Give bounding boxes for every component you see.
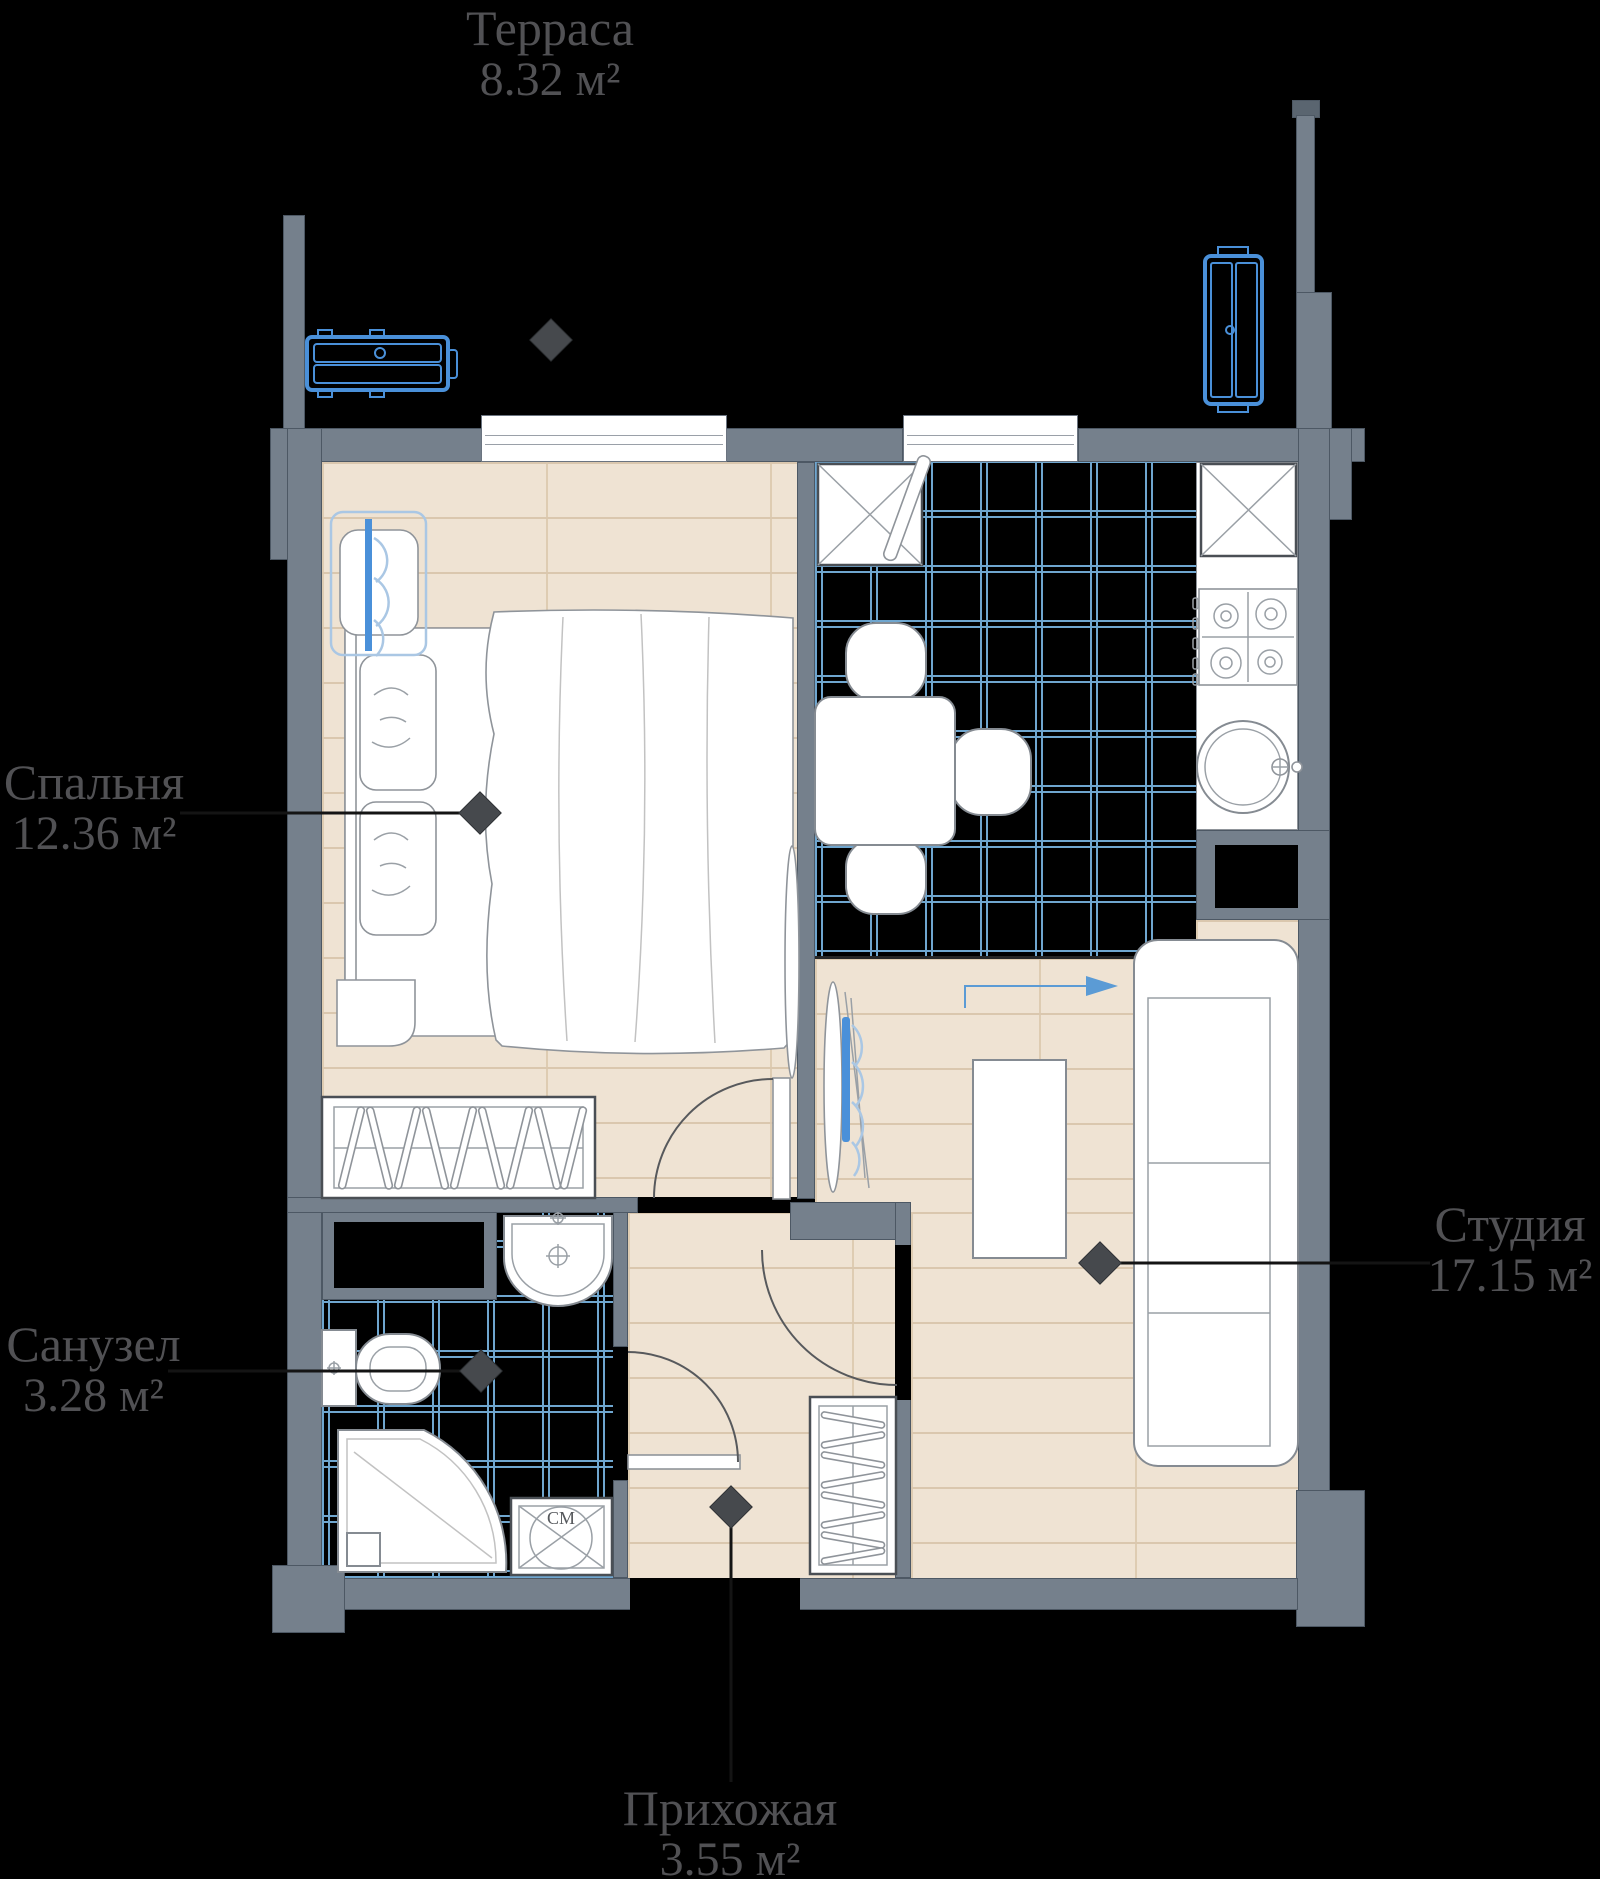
sliding-door-arrow xyxy=(965,976,1118,1008)
bathroom-name: Санузел xyxy=(0,1318,191,1371)
hallway-name: Прихожая xyxy=(540,1782,920,1835)
stove xyxy=(1193,589,1297,685)
washing-machine: СМ xyxy=(511,1498,612,1575)
toilet xyxy=(322,1330,440,1406)
studio-curtain xyxy=(824,982,869,1192)
fridge xyxy=(1201,464,1296,556)
studio-label: Студия 17.15 м² xyxy=(1415,1198,1600,1301)
bathroom-area: 3.28 м² xyxy=(0,1371,191,1421)
bedroom-door xyxy=(654,1078,790,1199)
terrace-cabinet xyxy=(1205,247,1262,412)
hallway-label: Прихожая 3.55 м² xyxy=(540,1782,920,1879)
hallway-wardrobe xyxy=(810,1397,896,1574)
bathroom-label: Санузел 3.28 м² xyxy=(0,1318,191,1421)
coffee-table xyxy=(973,1060,1066,1258)
bathroom-door xyxy=(628,1352,740,1469)
hall-studio-door xyxy=(762,1250,897,1385)
bedroom-name: Спальня xyxy=(0,756,194,809)
washer-label: СМ xyxy=(547,1508,575,1528)
terrace-area: 8.32 м² xyxy=(330,55,770,105)
studio-name: Студия xyxy=(1415,1198,1600,1251)
hallway-area: 3.55 м² xyxy=(540,1835,920,1879)
bedroom-label: Спальня 12.36 м² xyxy=(0,756,194,859)
terrace-label: Терраса 8.32 м² xyxy=(330,2,770,105)
shower xyxy=(338,1430,506,1572)
curtain-rail xyxy=(842,1017,850,1142)
sofa xyxy=(1134,940,1298,1466)
furniture-layer: СМ xyxy=(0,0,1600,1879)
dining-table xyxy=(815,697,955,845)
leader-hallway xyxy=(710,1486,752,1782)
kitchen-sink xyxy=(1197,721,1302,813)
dining-set xyxy=(815,623,1031,914)
bedroom-mirror xyxy=(785,846,799,1078)
terrace-name: Терраса xyxy=(330,2,770,55)
leader-terrace xyxy=(530,319,572,361)
bedroom-area: 12.36 м² xyxy=(0,809,194,859)
curtain-rail xyxy=(365,519,372,651)
terrace-ac-unit xyxy=(307,330,457,397)
studio-area: 17.15 м² xyxy=(1415,1251,1600,1301)
bedroom-wardrobe xyxy=(322,1097,595,1198)
bedroom-nightstand xyxy=(337,980,415,1046)
floor-plan: СМ xyxy=(0,0,1600,1879)
bathroom-sink xyxy=(504,1212,612,1306)
